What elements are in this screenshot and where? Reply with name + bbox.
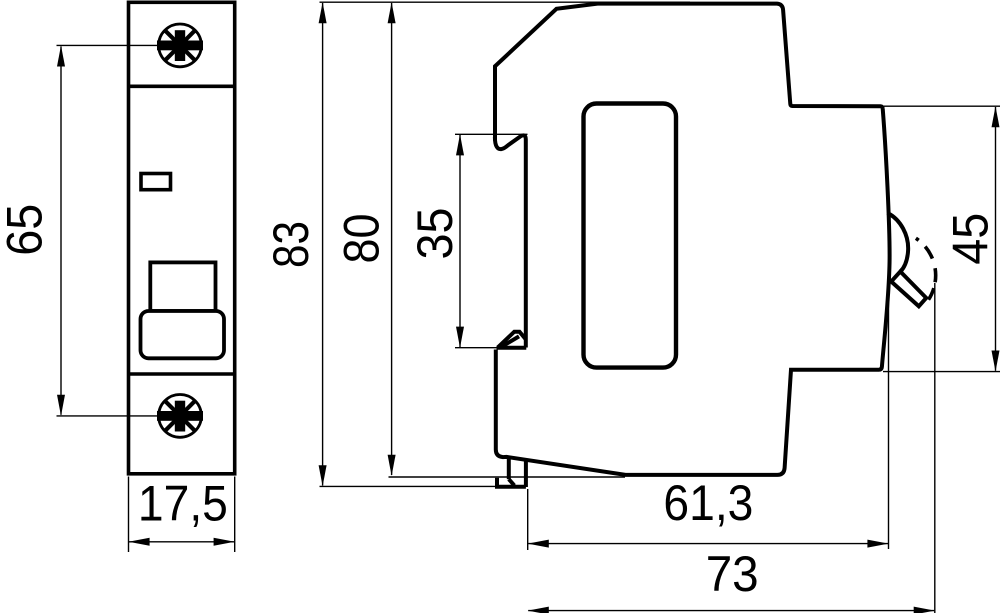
svg-text:17,5: 17,5 <box>138 475 228 531</box>
svg-text:35: 35 <box>407 208 463 260</box>
svg-text:73: 73 <box>706 546 759 602</box>
svg-text:83: 83 <box>263 221 319 268</box>
svg-text:45: 45 <box>943 213 999 265</box>
svg-text:65: 65 <box>0 204 52 256</box>
svg-text:61,3: 61,3 <box>663 475 753 531</box>
svg-text:80: 80 <box>334 214 390 264</box>
